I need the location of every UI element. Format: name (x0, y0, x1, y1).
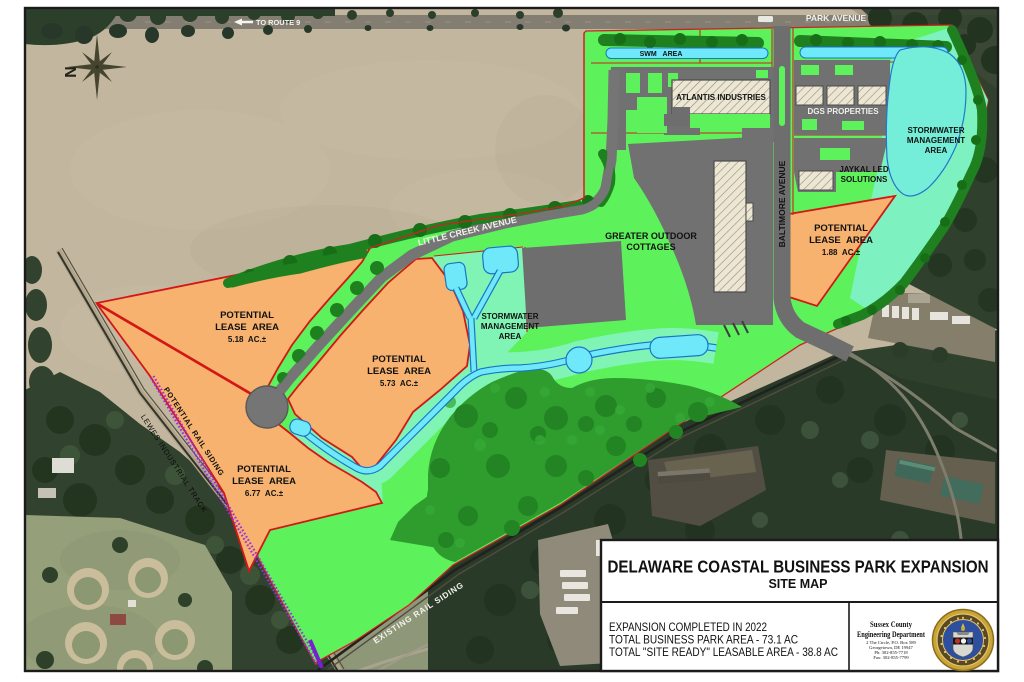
svg-text:6.77 AC.±: 6.77 AC.± (245, 489, 284, 498)
svg-text:POTENTIAL: POTENTIAL (372, 354, 426, 365)
svg-text:ATLANTIS INDUSTRIES: ATLANTIS INDUSTRIES (676, 93, 766, 102)
svg-text:Engineering Department: Engineering Department (857, 629, 925, 639)
svg-text:LEASE AREA: LEASE AREA (809, 235, 873, 246)
svg-text:AREA: AREA (925, 146, 948, 155)
svg-text:BALTIMORE AVENUE: BALTIMORE AVENUE (777, 160, 787, 247)
svg-text:POTENTIAL: POTENTIAL (814, 223, 868, 234)
svg-text:MANAGEMENT: MANAGEMENT (481, 322, 539, 331)
svg-text:SOLUTIONS: SOLUTIONS (841, 175, 888, 184)
svg-text:DGS PROPERTIES: DGS PROPERTIES (807, 107, 879, 116)
svg-text:PARK AVENUE: PARK AVENUE (806, 13, 867, 23)
svg-text:LEASE AREA: LEASE AREA (367, 366, 431, 377)
svg-text:SWM AREA: SWM AREA (640, 51, 683, 58)
svg-text:MANAGEMENT: MANAGEMENT (907, 136, 965, 145)
svg-text:AREA: AREA (499, 332, 522, 341)
svg-text:SITE MAP: SITE MAP (768, 577, 827, 591)
svg-text:LEASE AREA: LEASE AREA (232, 476, 296, 487)
svg-text:GREATER OUTDOOR: GREATER OUTDOOR (605, 231, 697, 241)
svg-text:Sussex County: Sussex County (870, 619, 912, 629)
svg-text:Fax: 302-855-7799: Fax: 302-855-7799 (873, 655, 909, 660)
svg-text:TOTAL "SITE READY" LEASABLE AR: TOTAL "SITE READY" LEASABLE AREA - 38.8 … (609, 645, 838, 659)
svg-text:POTENTIAL: POTENTIAL (220, 310, 274, 321)
svg-text:5.73 AC.±: 5.73 AC.± (380, 379, 419, 388)
svg-text:JAYKAL LED: JAYKAL LED (839, 165, 889, 174)
svg-text:5.18 AC.±: 5.18 AC.± (228, 335, 267, 344)
svg-text:TO ROUTE 9: TO ROUTE 9 (256, 18, 300, 27)
svg-text:LEASE AREA: LEASE AREA (215, 322, 279, 333)
svg-text:N: N (61, 66, 78, 78)
svg-text:STORMWATER: STORMWATER (907, 126, 964, 135)
svg-text:STORMWATER: STORMWATER (481, 312, 538, 321)
svg-text:1.88 AC.±: 1.88 AC.± (822, 248, 861, 257)
svg-text:POTENTIAL: POTENTIAL (237, 464, 291, 475)
svg-text:COTTAGES: COTTAGES (626, 242, 675, 252)
svg-text:DELAWARE COASTAL BUSINESS PARK: DELAWARE COASTAL BUSINESS PARK EXPANSION (608, 557, 989, 577)
